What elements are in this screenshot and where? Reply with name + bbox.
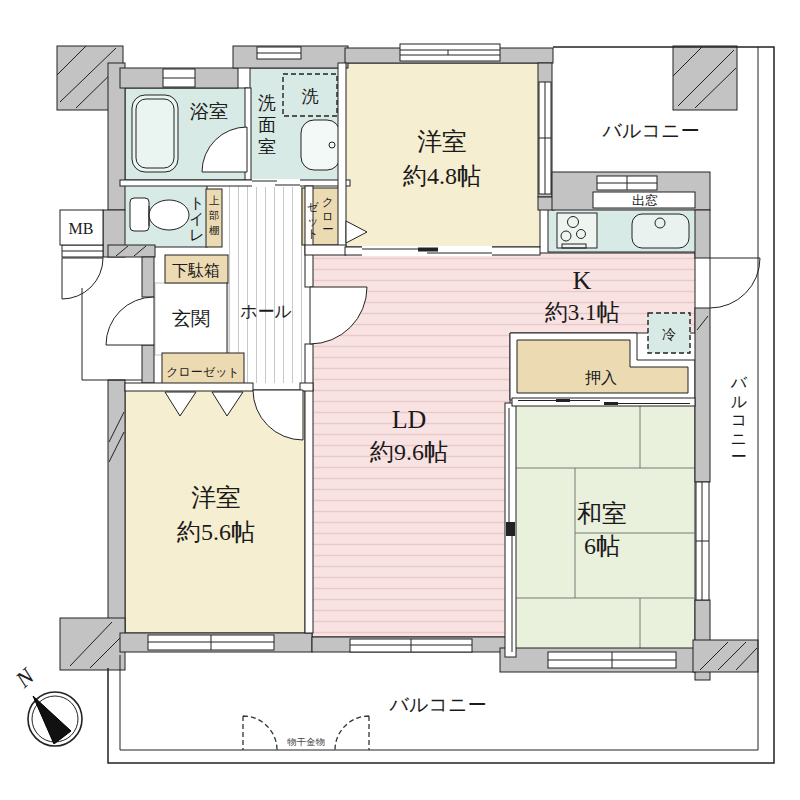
washroom-sink [301,120,340,170]
closet-upper-label-col1: クロー [322,196,334,235]
western-room1-area: 約4.8帖 [402,163,481,189]
western-room2-name: 洋室 [191,484,241,511]
japanese-room-floor [510,405,695,655]
ld-bottom-window [350,639,472,652]
oshiire-sliding-door [512,398,695,406]
entrance-label: 玄関 [172,308,210,329]
kitchen-area: 約3.1帖 [545,300,620,325]
bath-window [163,69,195,87]
hall-label: ホール [240,302,292,321]
japanese-room-name: 和室 [577,500,627,527]
hatched-block-bottom-right [693,640,758,672]
meter-box: MB [60,210,103,245]
balcony-bottom-label: バルコニー [389,694,487,715]
washroom-door [252,179,300,187]
closet-upper-label-col2: ゼット [307,201,319,240]
bathtub [132,95,178,172]
western-room1-name: 洋室 [417,128,467,155]
western-room1-side-window [539,82,551,194]
western-room1-floor [345,63,540,247]
ld-name: LD [392,405,427,434]
kitchen-name: K [573,266,592,295]
japanese-room-sliding-door [505,403,516,657]
kitchen-sink [632,214,689,248]
washroom-window [257,47,301,59]
toilet-fixture [130,198,189,231]
toilet-label: トイレ [189,195,204,243]
bath-label: 浴室 [190,101,228,122]
oshiire-label: 押入 [585,369,617,386]
entrance-door [106,297,154,345]
compass: N [10,662,82,746]
mb-window [62,245,103,257]
laundry-fitting-label: 物干金物 [287,737,325,747]
closet-lower-label: クローゼット [166,365,239,379]
fridge-label: 冷 [662,327,676,342]
shoe-cabinet-label: 下駄箱 [172,262,220,279]
hatched-block-top-right [673,46,737,110]
compass-north-label: N [10,662,40,693]
japanese-room-bottom-window [548,652,676,668]
floor-plan-svg: MB N 洋室 約4.8帖 洋室 約5.6帖 LD 約9.6帖 K 約3.1帖 … [0,0,800,800]
floor-plan: MB N 洋室 約4.8帖 洋室 約5.6帖 LD 約9.6帖 K 約3.1帖 … [0,0,800,800]
ld-area: 約9.6帖 [369,439,448,465]
upper-shelf-label: 上部棚 [209,195,220,236]
western-room1-top-window [400,44,500,61]
kitchen-balcony-door [710,258,760,308]
japanese-room-side-window [696,482,709,600]
meter-box-label: MB [69,220,94,237]
hatched-block-bottom-left [60,618,125,670]
western-room2-area: 約5.6帖 [176,519,255,545]
balcony-right-label: バルコニー [730,374,748,465]
western-room1-sliding-door [362,246,492,256]
kitchen-counter [548,208,698,252]
entrance-wall-hatched [108,245,155,257]
japanese-room-area: 6帖 [584,533,620,559]
bay-window-label: 出窓 [632,193,658,208]
washer-label: 洗 [302,87,319,106]
washroom-label: 洗面室 [258,93,276,157]
western-room2-bottom-window [148,635,274,650]
balcony-top-label: バルコニー [602,120,700,141]
